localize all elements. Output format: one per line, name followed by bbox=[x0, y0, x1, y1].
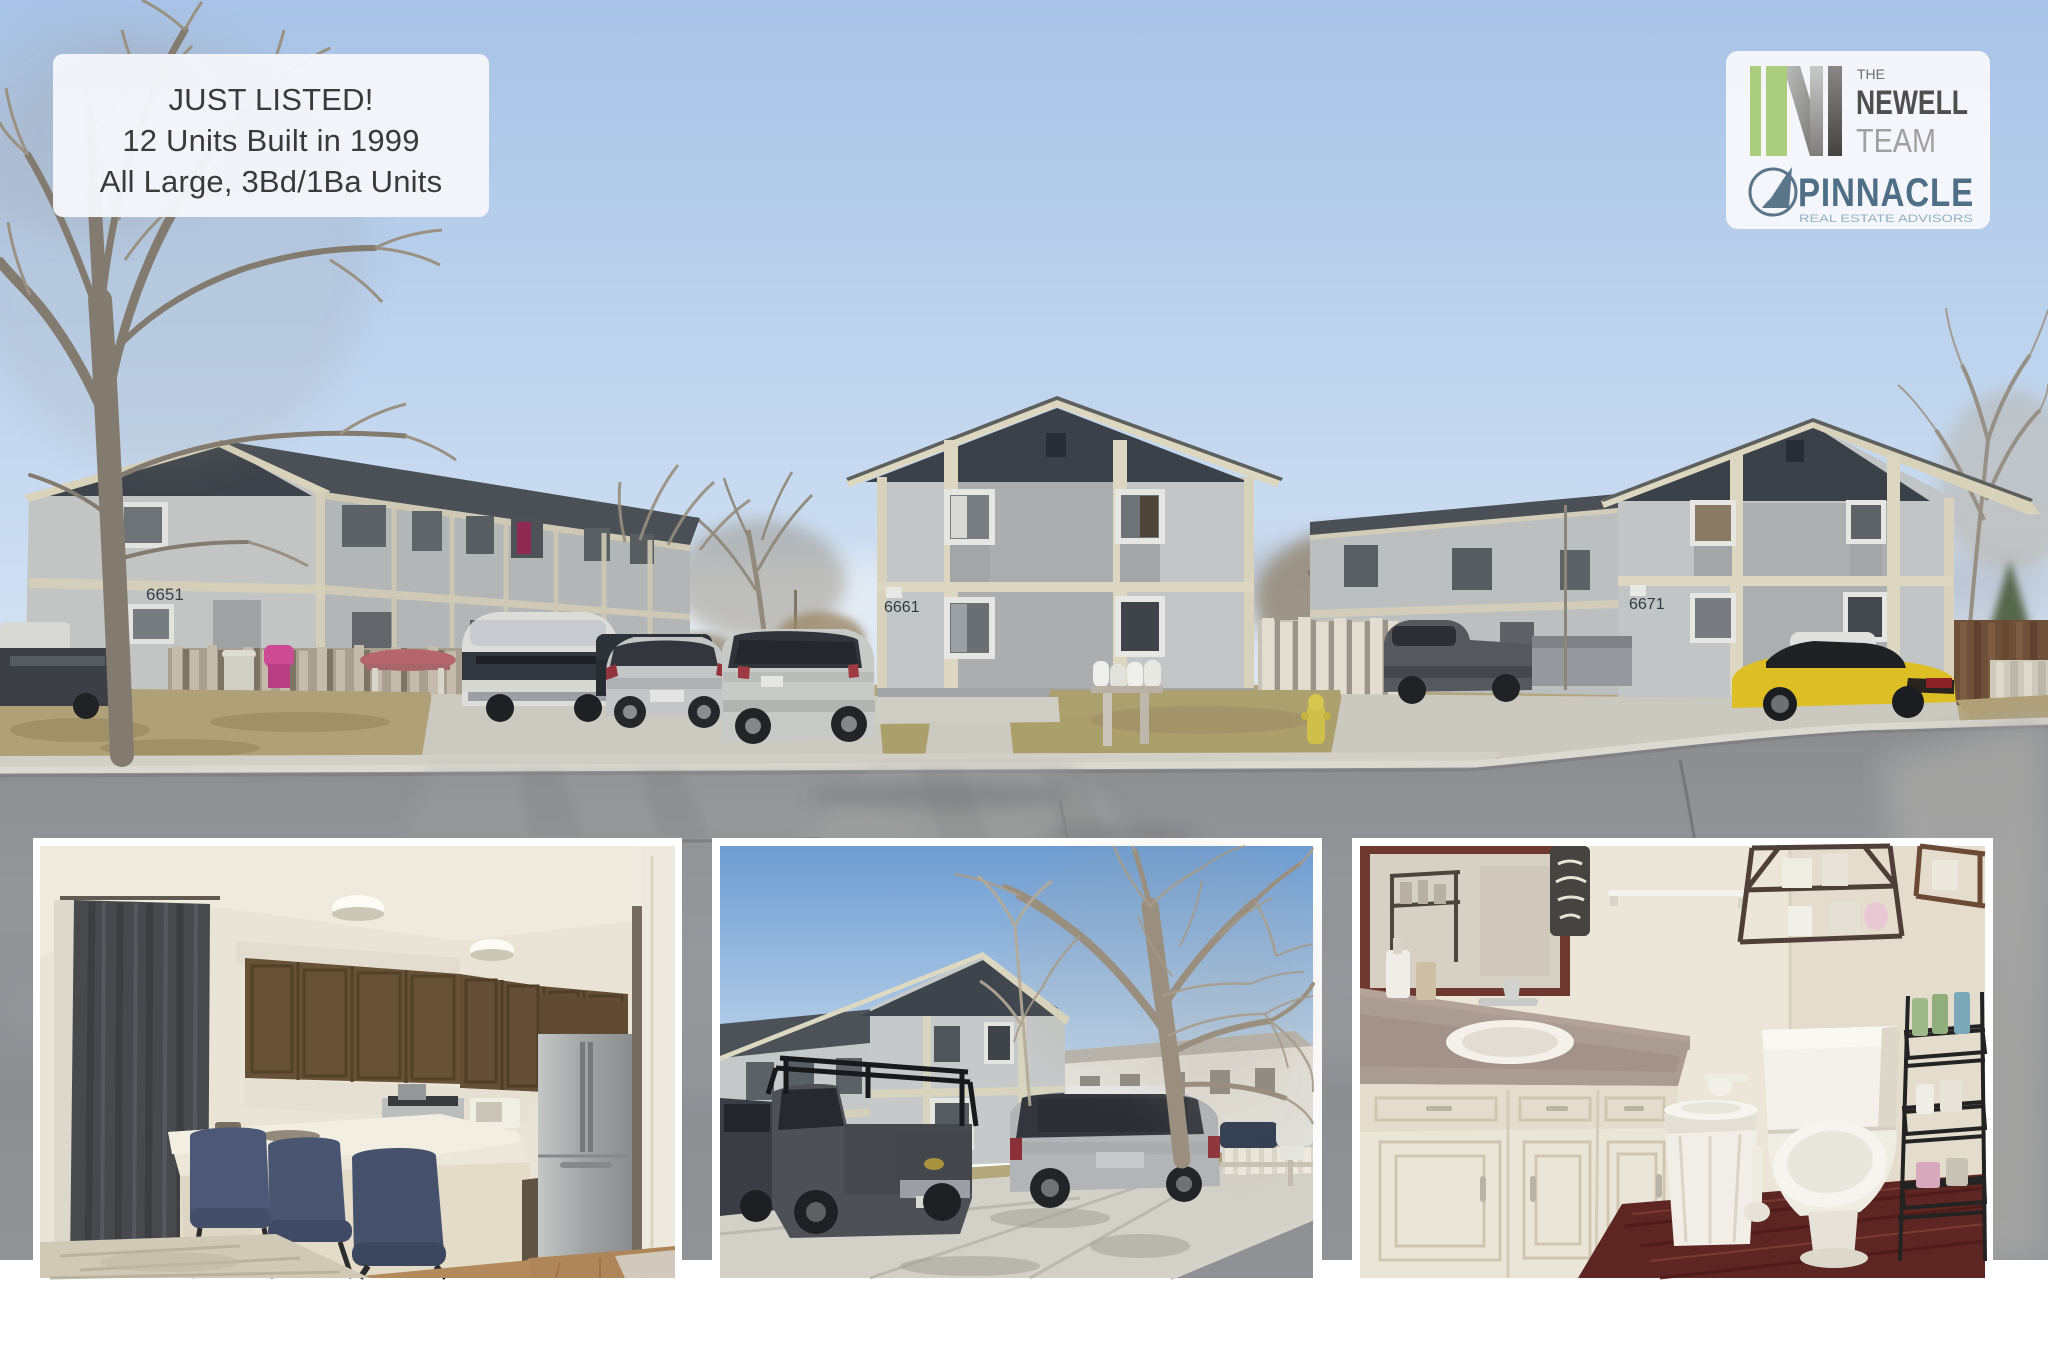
svg-text:6661: 6661 bbox=[884, 599, 920, 616]
svg-text:6671: 6671 bbox=[1629, 596, 1665, 613]
svg-text:NEWELL: NEWELL bbox=[1856, 84, 1968, 122]
svg-text:REAL ESTATE ADVISORS: REAL ESTATE ADVISORS bbox=[1799, 213, 1973, 225]
svg-text:6651: 6651 bbox=[146, 585, 184, 604]
svg-text:TEAM: TEAM bbox=[1856, 122, 1936, 159]
svg-text:PINNACLE: PINNACLE bbox=[1798, 171, 1974, 215]
svg-text:THE: THE bbox=[1857, 66, 1885, 82]
